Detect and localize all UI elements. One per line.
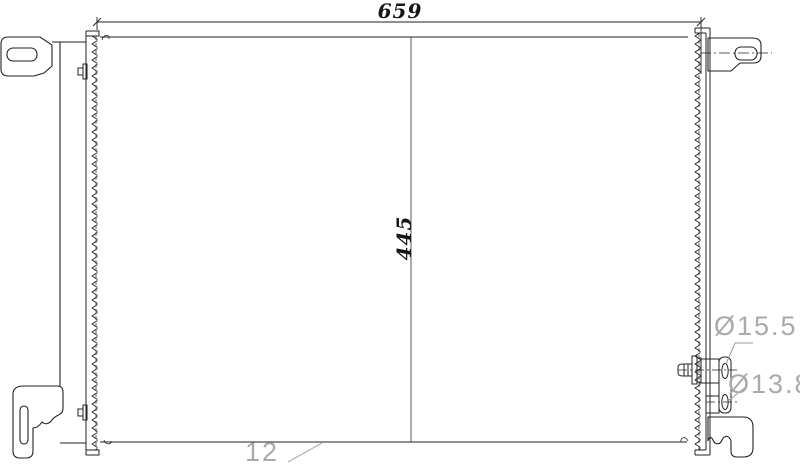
right-bottom-bracket	[708, 417, 753, 457]
right-top-bracket	[700, 38, 772, 71]
right-header	[695, 28, 711, 455]
leader-lines	[288, 343, 753, 462]
left-bottom-bracket	[13, 386, 63, 458]
core	[100, 35, 688, 444]
leader-depth	[288, 443, 322, 462]
leader-port-top	[726, 343, 753, 364]
left-top-bracket	[1, 37, 86, 443]
condenser-drawing: 659 445 12 Ø15.5 Ø13.8	[0, 0, 800, 466]
dim-659-lines	[93, 17, 705, 74]
port-fitting	[678, 356, 737, 413]
drawing-linework	[0, 0, 800, 466]
left-header	[78, 31, 100, 455]
